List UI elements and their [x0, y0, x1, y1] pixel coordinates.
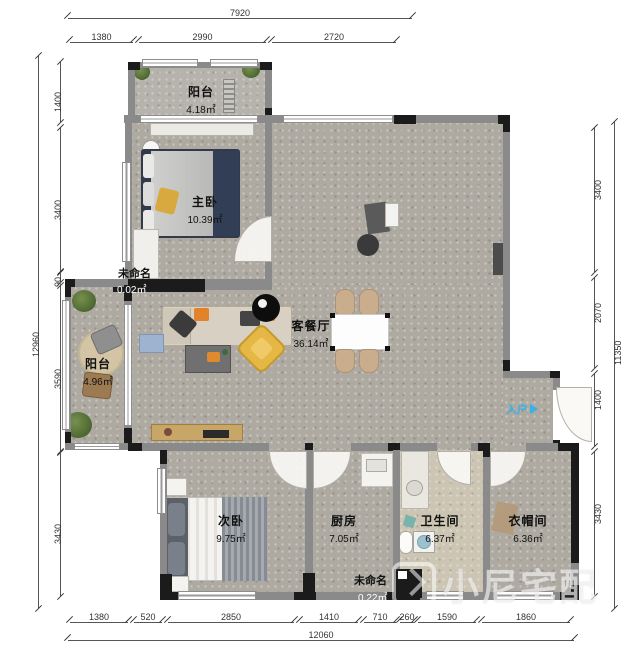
wall — [503, 120, 510, 378]
pillow — [143, 154, 154, 178]
dim-bottom-seg8: 1860 — [482, 622, 570, 623]
desk-cabinet[interactable] — [385, 203, 399, 227]
wall-column — [128, 62, 140, 70]
window — [122, 162, 131, 262]
dim-left-seg5: 3430 — [60, 452, 61, 596]
entry-label: 入户 — [506, 401, 538, 417]
dim-right-seg2: 2070 — [594, 278, 595, 368]
room-label-bedroom2: 次卧 9.75㎡ — [216, 512, 245, 545]
selection-handle — [385, 346, 390, 351]
floorplan-canvas: 阳台 4.18㎡ 主卧 10.39㎡ 客餐厅 36.14㎡ 阳台 4.96㎡ 次… — [0, 0, 640, 666]
dim-bottom-seg3: 2850 — [168, 622, 294, 623]
wardrobe[interactable] — [150, 123, 254, 136]
room-label-unnamed1: 未命名 — [118, 265, 151, 281]
room-label-balcony-top: 阳台 4.18㎡ — [186, 83, 215, 116]
window — [140, 115, 258, 123]
window — [178, 591, 256, 600]
dim-top-seg1: 1380 — [70, 42, 133, 43]
desk-chair[interactable] — [357, 234, 379, 256]
wall-column — [571, 443, 579, 565]
wall — [265, 120, 272, 216]
wall-column — [65, 285, 71, 297]
wall-column — [160, 450, 167, 464]
window — [62, 300, 70, 430]
pillow — [143, 182, 154, 206]
dining-chair[interactable] — [359, 349, 379, 373]
window — [124, 304, 132, 426]
wall-column — [503, 120, 510, 132]
dim-right-total: 11350 — [614, 122, 615, 608]
dining-chair[interactable] — [335, 349, 355, 373]
toilet[interactable] — [399, 531, 413, 554]
wall-column — [550, 371, 560, 378]
dim-top-seg3: 2720 — [272, 42, 396, 43]
window — [74, 443, 120, 450]
coffee-table-tray — [207, 352, 220, 362]
room-label-master: 主卧 10.39㎡ — [187, 193, 222, 226]
floor-mat[interactable] — [139, 334, 164, 353]
wall-column — [483, 443, 490, 457]
selection-handle — [330, 313, 335, 318]
dim-left-seg2: 3400 — [60, 128, 61, 272]
dim-bottom-seg1: 1380 — [70, 622, 128, 623]
dim-top-seg2: 2990 — [139, 42, 266, 43]
entry-arrow-icon — [530, 404, 538, 414]
door-arc-entry[interactable] — [556, 387, 592, 442]
ball-chair[interactable] — [252, 294, 280, 322]
pillow — [168, 542, 185, 575]
room-area-unnamed2: 0.22㎡ — [358, 589, 387, 604]
room-label-bathroom: 卫生间 6.37㎡ — [420, 512, 459, 545]
wall — [205, 279, 272, 290]
dim-bottom-seg2: 520 — [134, 622, 162, 623]
dim-left-seg4: 3590 — [60, 286, 61, 452]
room-label-balcony-left: 阳台 4.96㎡ — [83, 355, 112, 388]
dining-chair[interactable] — [335, 289, 355, 315]
dim-top-total: 7920 — [68, 18, 412, 19]
room-label-kitchen: 厨房 7.05㎡ — [329, 512, 358, 545]
drying-rack[interactable] — [223, 79, 235, 113]
watermark-logo-icon — [392, 562, 436, 606]
wall-column — [394, 115, 416, 124]
dim-left-total: 12960 — [38, 56, 39, 608]
dim-left-seg1: 1400 — [60, 62, 61, 122]
vanity-sink — [406, 480, 423, 496]
dim-bottom-seg4: 1410 — [300, 622, 358, 623]
watermark: 小尼宅配 — [392, 557, 598, 611]
dim-bottom-seg5: 710 — [364, 622, 396, 623]
ball-chair-cushion — [258, 299, 267, 308]
room-label-living: 客餐厅 36.14㎡ — [291, 317, 330, 350]
dim-bottom-seg7: 1590 — [418, 622, 476, 623]
dim-right-seg1: 3400 — [594, 128, 595, 272]
pillow — [168, 503, 185, 536]
kitchen-sink — [366, 459, 387, 472]
room-label-unnamed2: 未命名 — [354, 572, 387, 588]
selection-handle — [385, 313, 390, 318]
dim-bottom-total: 12060 — [68, 640, 574, 641]
plant-icon[interactable] — [72, 290, 96, 312]
selection-handle — [330, 346, 335, 351]
dim-bottom-seg6: 260 — [400, 622, 414, 623]
console-decor — [164, 428, 172, 436]
window — [142, 59, 198, 67]
wall-column — [260, 62, 272, 70]
wall-column — [128, 443, 142, 451]
window — [210, 59, 258, 67]
room-label-cloakroom: 衣帽间 6.36㎡ — [508, 512, 547, 545]
dim-right-seg3: 1400 — [594, 374, 595, 446]
dining-chair[interactable] — [359, 289, 379, 315]
dim-left-seg3: 90 — [60, 272, 61, 282]
pillow-orange — [194, 308, 209, 321]
window — [283, 115, 393, 123]
wall — [128, 443, 269, 451]
wall — [128, 62, 135, 120]
wall-column — [294, 592, 316, 600]
dining-table[interactable] — [331, 314, 389, 350]
room-area-unnamed1: 0.02㎡ — [117, 281, 146, 296]
coffee-table-dot — [222, 349, 228, 355]
window — [157, 468, 166, 514]
tv[interactable] — [203, 430, 229, 438]
